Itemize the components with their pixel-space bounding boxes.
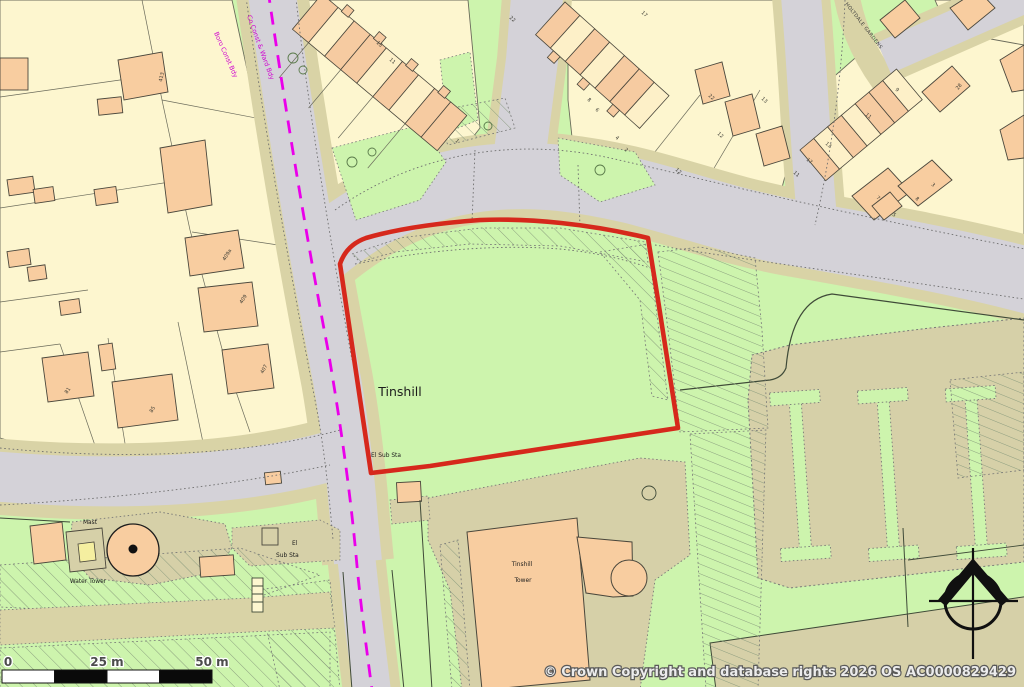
copyright-text: © Crown Copyright and database rights 20… bbox=[544, 665, 1016, 680]
os-map-canvas: Tinshill El Sub Sta Tinshill Tower Mast … bbox=[0, 0, 1024, 687]
os-map-viewport: Tinshill El Sub Sta Tinshill Tower Mast … bbox=[0, 0, 1024, 687]
place-label: Tinshill bbox=[377, 384, 422, 399]
el-label: El bbox=[292, 541, 298, 547]
el-sub-sta-label: El Sub Sta bbox=[371, 453, 401, 459]
mast-label: Mast bbox=[83, 520, 98, 526]
scale-tick-0: 0 bbox=[4, 655, 12, 669]
sub-sta-label: Sub Sta bbox=[276, 553, 299, 559]
scale-tick-25: 25 m bbox=[90, 655, 123, 669]
scale-tick-50: 50 m bbox=[195, 655, 228, 669]
steps bbox=[252, 578, 263, 612]
water-tower-label: Water Tower bbox=[70, 579, 107, 585]
tower-label-1: Tinshill bbox=[511, 562, 533, 568]
substation-building bbox=[396, 481, 421, 502]
tower-label-2: Tower bbox=[513, 578, 532, 584]
